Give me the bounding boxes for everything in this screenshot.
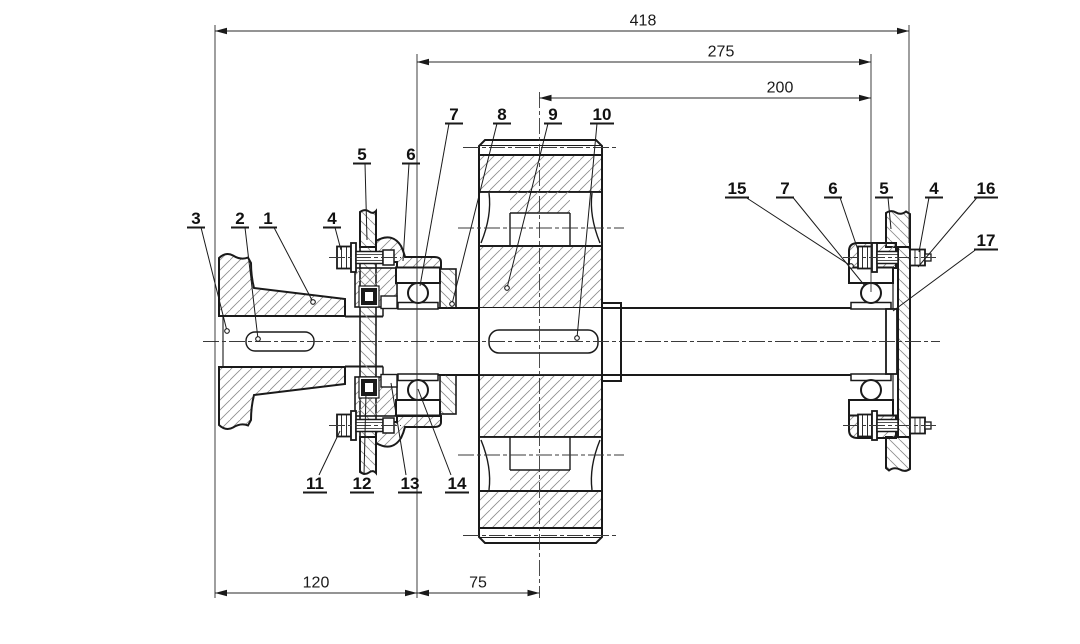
callout-5-right-label: 5 bbox=[879, 179, 888, 198]
dimension-275: 275 bbox=[417, 44, 871, 66]
left-plate-lower-tail bbox=[360, 437, 376, 474]
gear-hub-bottom bbox=[479, 375, 602, 437]
leader-line bbox=[403, 164, 409, 262]
dimension-200-value: 200 bbox=[767, 80, 794, 97]
bearing-ball-bottom bbox=[861, 380, 881, 400]
callout-9-label: 9 bbox=[548, 105, 557, 124]
callout-6-right-label: 6 bbox=[828, 179, 837, 198]
hub-lower-section bbox=[219, 367, 345, 429]
right-plate-web bbox=[898, 247, 910, 437]
dimension-120-value: 120 bbox=[303, 575, 330, 592]
bearing-ball-top bbox=[408, 283, 428, 303]
callout-12-label: 12 bbox=[353, 474, 372, 493]
arrowhead bbox=[897, 28, 909, 34]
leader-line bbox=[746, 198, 851, 267]
callout-5-left-label: 5 bbox=[357, 145, 366, 164]
arrowhead bbox=[417, 59, 429, 65]
outer-race-bottom bbox=[849, 400, 893, 416]
callout-2-label: 2 bbox=[235, 209, 244, 228]
leader-dot bbox=[450, 302, 455, 307]
right-flange-bearing-unit bbox=[849, 211, 931, 471]
seal-core bbox=[365, 292, 373, 301]
gear-web-top bbox=[510, 192, 570, 213]
callout-3-label: 3 bbox=[191, 209, 200, 228]
gear-web-bottom bbox=[510, 470, 570, 491]
callout-5-right: 5 bbox=[875, 179, 893, 229]
shaft-collar-upper bbox=[381, 296, 397, 309]
callout-7-right-label: 7 bbox=[780, 179, 789, 198]
seal-core bbox=[365, 383, 373, 392]
callout-8-label: 8 bbox=[497, 105, 506, 124]
shaft-collar-lower bbox=[381, 375, 397, 388]
callout-15-label: 15 bbox=[728, 179, 747, 198]
arrowhead bbox=[417, 590, 429, 596]
dimension-418-value: 418 bbox=[630, 13, 657, 30]
hub-upper-section bbox=[219, 254, 345, 316]
assembly-section-drawing: 418 275 200 120 75 3 bbox=[0, 0, 1080, 644]
lower-seal bbox=[359, 377, 379, 398]
leader-dot bbox=[575, 336, 580, 341]
outer-race-top bbox=[396, 268, 440, 284]
callout-4-right-label: 4 bbox=[929, 179, 939, 198]
leader-dot bbox=[256, 337, 261, 342]
callout-1-label: 1 bbox=[263, 209, 272, 228]
dimension-75-value: 75 bbox=[469, 575, 487, 592]
callout-11: 11 bbox=[303, 431, 340, 493]
leader-line bbox=[840, 198, 858, 251]
upper-seal bbox=[359, 286, 379, 307]
callout-4-left: 4 bbox=[323, 209, 341, 250]
dimension-120: 120 bbox=[215, 575, 417, 597]
outer-race-bottom bbox=[396, 400, 440, 416]
bearing-cap-lower bbox=[440, 375, 456, 414]
drawing-canvas: 418 275 200 120 75 3 bbox=[0, 0, 1080, 644]
dimension-275-value: 275 bbox=[708, 44, 735, 61]
dimension-200: 200 bbox=[540, 80, 872, 102]
arrowhead bbox=[215, 590, 227, 596]
callout-14-label: 14 bbox=[448, 474, 467, 493]
shaft-spacer-ring bbox=[602, 303, 621, 381]
arrowhead bbox=[405, 590, 417, 596]
gear-hub-top bbox=[479, 246, 602, 308]
callout-11-label: 11 bbox=[306, 474, 324, 493]
dimension-75: 75 bbox=[417, 575, 540, 597]
callout-4-left-label: 4 bbox=[327, 209, 337, 228]
leader-line bbox=[919, 198, 929, 253]
gear-rim-top bbox=[479, 155, 602, 192]
callout-10-label: 10 bbox=[593, 105, 612, 124]
gear-rim-bottom bbox=[479, 491, 602, 528]
arrowhead bbox=[859, 95, 871, 101]
leader-line bbox=[319, 431, 340, 475]
callout-17-label: 17 bbox=[977, 231, 996, 250]
left-plate-upper-tail bbox=[360, 210, 376, 247]
leader-dot bbox=[311, 300, 316, 305]
callout-7-left-label: 7 bbox=[449, 105, 458, 124]
left-flange-bearing-unit bbox=[337, 210, 456, 474]
right-plate-lower-tail bbox=[886, 437, 910, 471]
callout-6-right: 6 bbox=[824, 179, 858, 250]
dimension-418: 418 bbox=[215, 13, 909, 35]
leader-dot bbox=[505, 286, 510, 291]
callout-6-left-label: 6 bbox=[406, 145, 415, 164]
leader-line bbox=[793, 198, 865, 287]
arrowhead bbox=[540, 95, 552, 101]
leader-dot bbox=[225, 329, 230, 334]
arrowhead bbox=[859, 59, 871, 65]
arrowhead bbox=[528, 590, 540, 596]
callout-16-label: 16 bbox=[977, 179, 996, 198]
callout-13-label: 13 bbox=[401, 474, 420, 493]
arrowhead bbox=[215, 28, 227, 34]
leader-dot bbox=[849, 264, 854, 269]
